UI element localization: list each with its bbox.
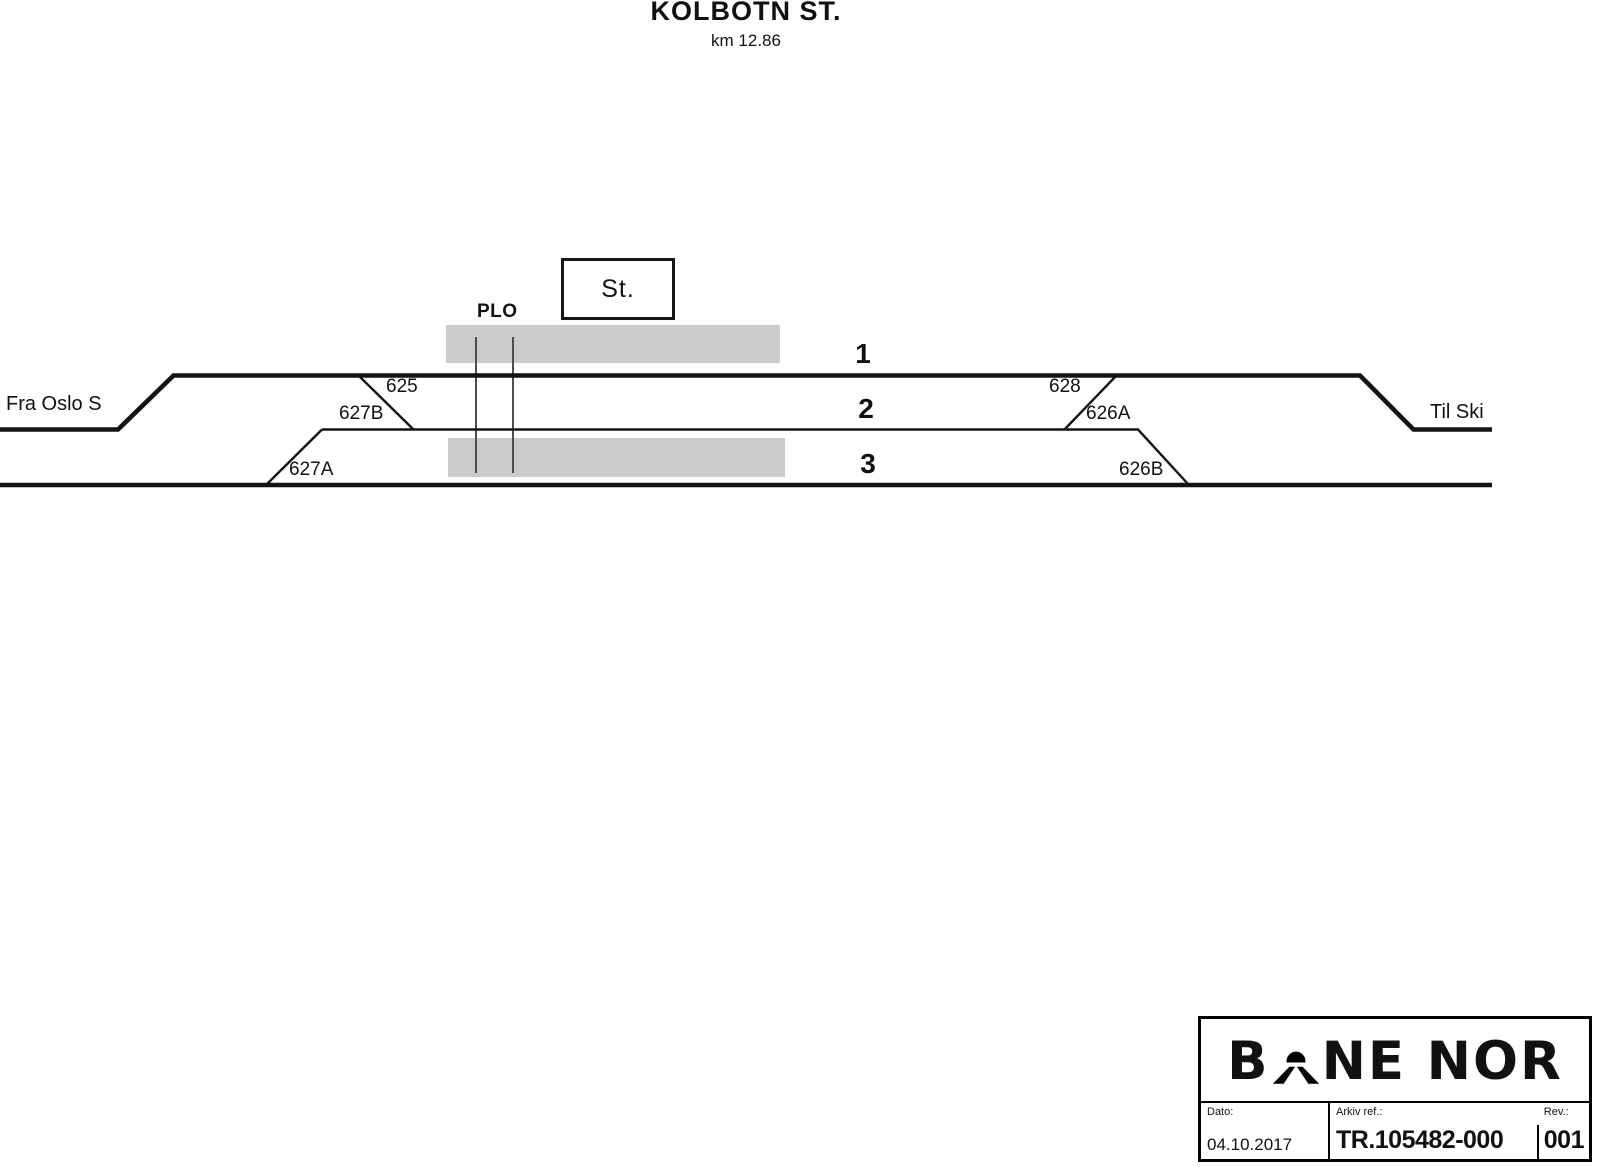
field-rev: Rev.: 001 <box>1537 1103 1589 1159</box>
switch-label-627B: 627B <box>339 403 383 425</box>
track-number-3: 3 <box>853 448 883 480</box>
bane-nor-a-icon <box>1271 1041 1321 1085</box>
switch-label-626B: 626B <box>1119 459 1163 481</box>
switch-label-625: 625 <box>386 376 418 398</box>
rev-label: Rev.: <box>1544 1106 1584 1118</box>
main-line-track-1 <box>0 376 1492 430</box>
drawing-page: KOLBOTN ST. km 12.86 Fra Oslo S Til Ski … <box>0 0 1600 1167</box>
dato-value: 04.10.2017 <box>1207 1135 1323 1155</box>
track-number-2: 2 <box>851 393 881 425</box>
switch-label-626A: 626A <box>1086 403 1130 425</box>
platform-lower <box>448 438 785 477</box>
logo-text-left: B <box>1227 1031 1269 1092</box>
platform-upper <box>446 325 780 363</box>
switch-label-627A: 627A <box>289 459 333 481</box>
direction-from-label: Fra Oslo S <box>6 393 102 416</box>
title-block-fields-row: Dato: 04.10.2017 Arkiv ref.: TR.105482-0… <box>1201 1101 1589 1159</box>
switch-label-628: 628 <box>1049 376 1081 398</box>
logo-text-right: NE NOR <box>1322 1031 1563 1092</box>
field-arkiv-ref: Arkiv ref.: TR.105482-000 <box>1330 1103 1537 1159</box>
direction-to-label: Til Ski <box>1430 401 1484 424</box>
bane-nor-logo: B NE NOR <box>1201 1019 1589 1101</box>
station-building-box: St. <box>561 258 675 320</box>
arkiv-ref-value: TR.105482-000 <box>1336 1126 1532 1155</box>
station-building-label: St. <box>601 275 635 304</box>
title-block: B NE NOR Dato: 04.10.2017 Arkiv ref.: TR… <box>1198 1016 1592 1162</box>
arkiv-ref-label: Arkiv ref.: <box>1336 1106 1532 1118</box>
rev-value: 001 <box>1544 1126 1584 1155</box>
dato-label: Dato: <box>1207 1106 1323 1118</box>
track-number-1: 1 <box>848 338 878 370</box>
track-schematic <box>0 0 1600 1167</box>
level-crossing-label: PLO <box>477 301 518 323</box>
field-dato: Dato: 04.10.2017 <box>1201 1103 1330 1159</box>
